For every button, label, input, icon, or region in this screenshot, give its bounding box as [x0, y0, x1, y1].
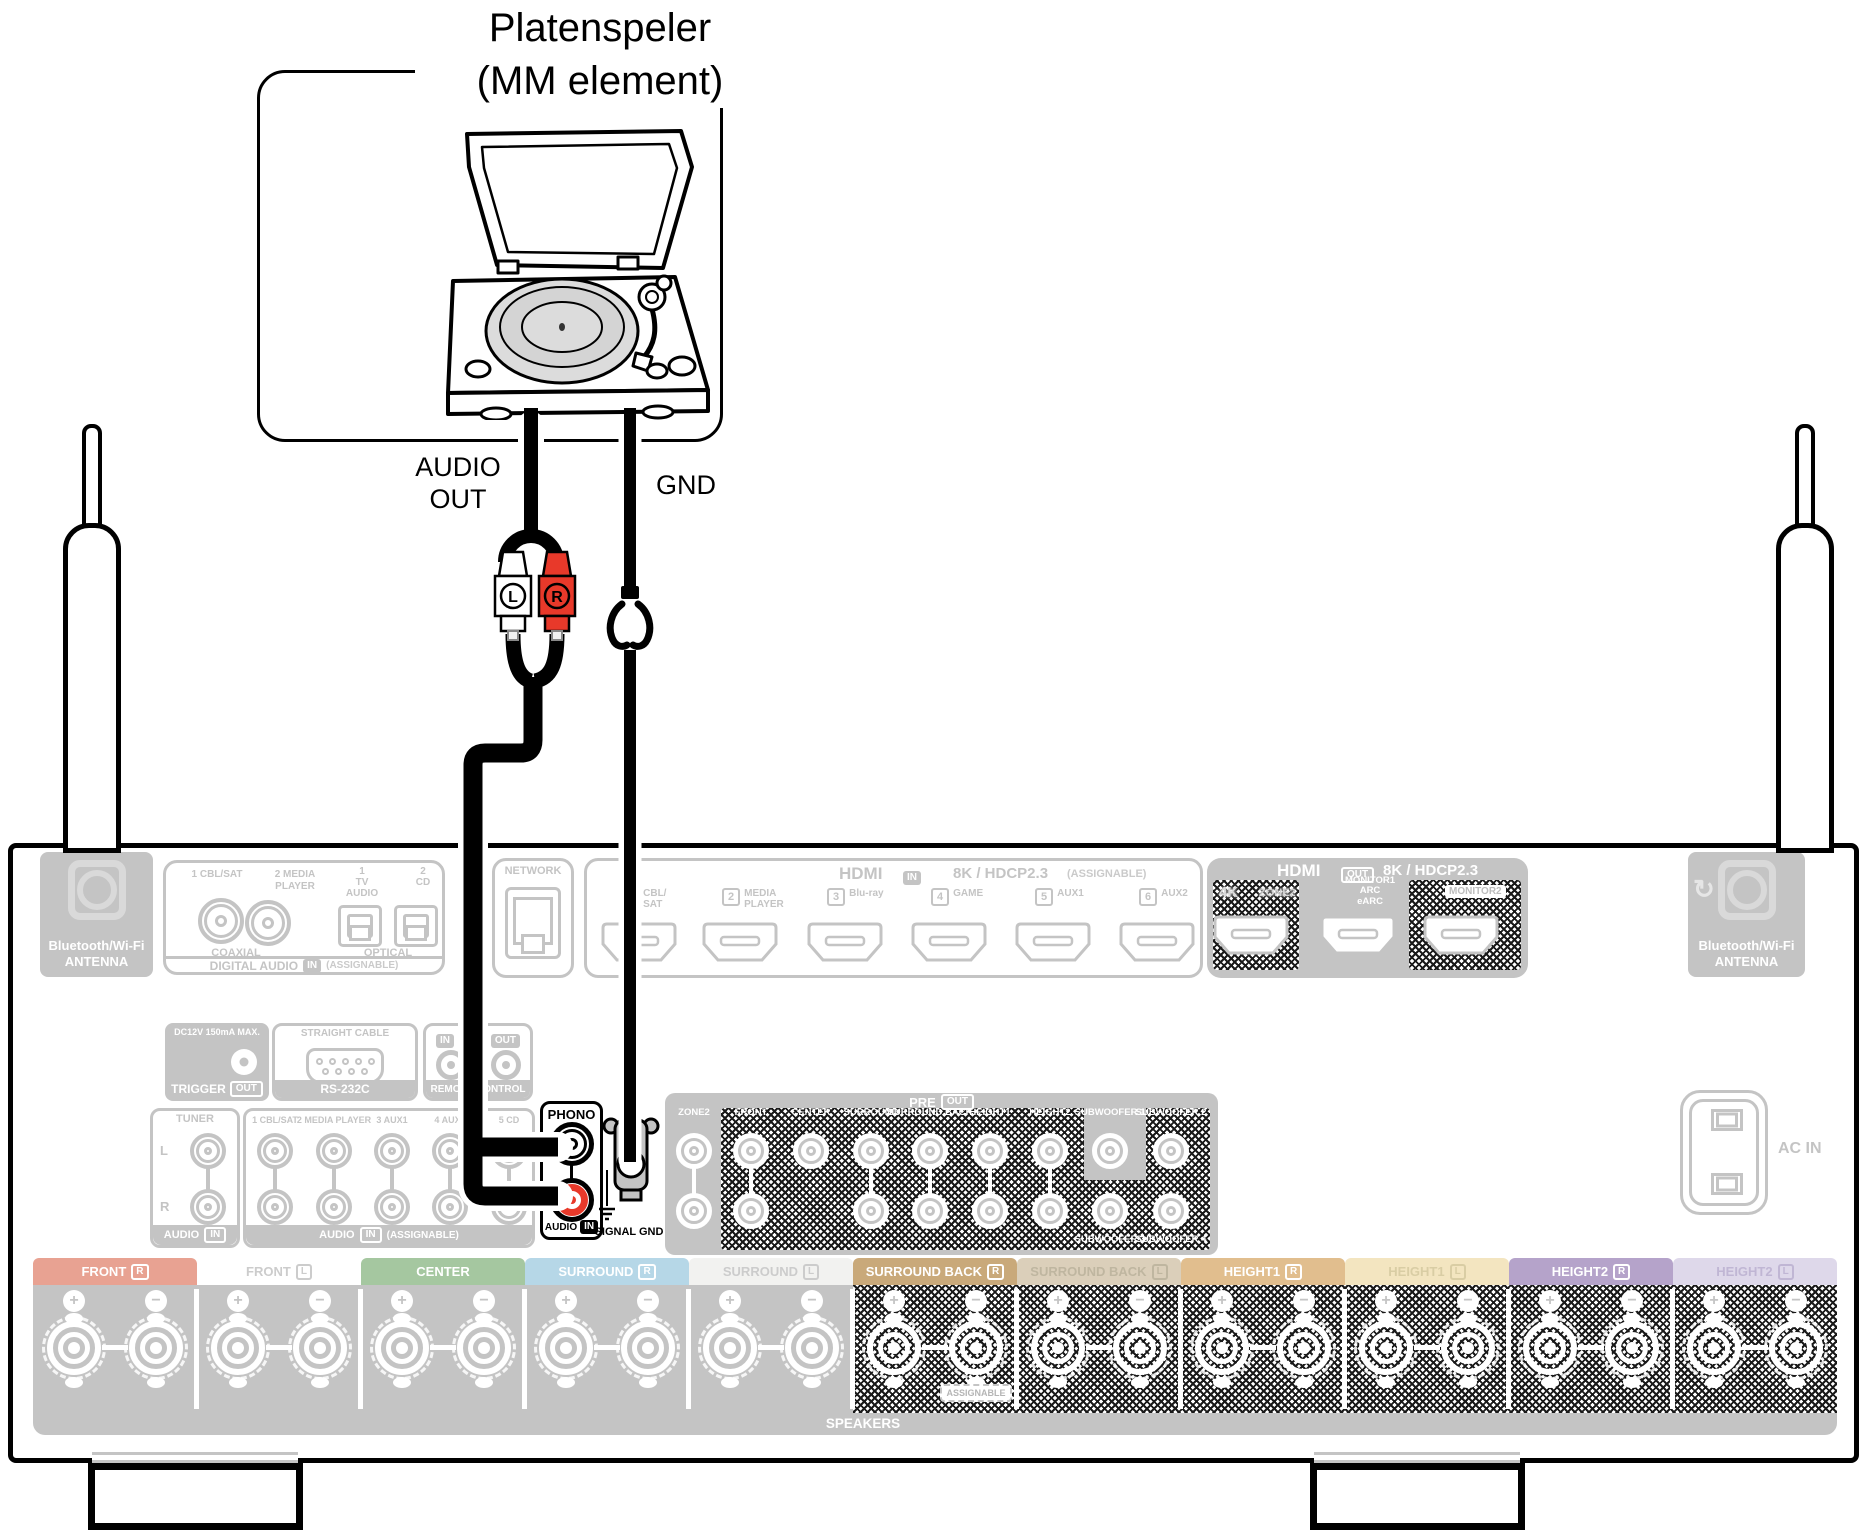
speaker-channel-band: HEIGHT1L [1345, 1258, 1509, 1285]
plus-terminal-symbol: + [719, 1290, 741, 1312]
right-antenna-tip [1795, 424, 1815, 530]
trigger-jack [231, 1049, 257, 1075]
hdmi-out-group: HDMI OUT 8K / HDCP2.3 4K ZONE2 MONITOR1 … [1207, 858, 1528, 978]
trigger-label: TRIGGER [171, 1082, 226, 1096]
plus-terminal-symbol: + [391, 1290, 413, 1312]
left-channel-letter: L [160, 1143, 168, 1158]
optical-port [394, 905, 438, 947]
analog-jack [432, 1133, 468, 1169]
gnd-spade-fork [610, 604, 650, 646]
speaker-binding-post [1195, 1321, 1249, 1375]
tuner-label: TUNER [153, 1113, 237, 1125]
speaker-channel-name: SURROUND [723, 1264, 798, 1279]
speaker-binding-post [1359, 1321, 1413, 1375]
remote-out-badge: OUT [491, 1034, 520, 1048]
hdmi-port-icon [600, 921, 678, 963]
chassis-recess [92, 1452, 298, 1463]
audio-cable-merge [513, 634, 531, 681]
assignable-label: (ASSIGNABLE) [387, 1230, 459, 1241]
speaker-channel-band: FRONTL [197, 1258, 361, 1285]
preout-jack [1092, 1193, 1128, 1229]
phono-jack-right [550, 1178, 594, 1222]
preout-column-label: FRONT [735, 1107, 768, 1118]
preout-jack [1153, 1193, 1189, 1229]
analog-audio-in-group: 1 CBL/SAT2 MEDIA PLAYER3 AUX14 AUX25 CD … [243, 1108, 535, 1248]
chassis-recess [1314, 1452, 1520, 1463]
hdmi-port-name: MEDIA PLAYER [744, 888, 784, 910]
plus-terminal-symbol: + [1047, 1290, 1069, 1312]
plus-terminal-symbol: + [1375, 1290, 1397, 1312]
analog-jack [257, 1133, 293, 1169]
speaker-channel-name: SURROUND BACK [1030, 1264, 1146, 1279]
preout-jack [972, 1193, 1008, 1229]
optical-input1-label: 1 TV AUDIO [338, 866, 386, 899]
preout-jack [676, 1133, 712, 1169]
analog-footer: AUDIO IN (ASSIGNABLE) [246, 1225, 532, 1245]
remote-control-block: IN OUT REMOTE CONTROL [423, 1023, 533, 1101]
speaker-channel-band: FRONTR [33, 1258, 197, 1285]
plus-terminal-symbol: + [883, 1290, 905, 1312]
hdmi-port-number: 4 [931, 888, 949, 906]
trigger-out-badge: OUT [230, 1081, 263, 1097]
hdmi-port-icon [1422, 914, 1500, 956]
speaker-channel-letter: L [1450, 1264, 1466, 1280]
analog-jack [432, 1189, 468, 1225]
receiver-rear-panel: Bluetooth/Wi-Fi ANTENNA ↻ Bluetooth/Wi-F… [8, 843, 1859, 1463]
speakers-label: SPEAKERS [783, 1416, 943, 1431]
minus-terminal-symbol: − [637, 1290, 659, 1312]
speaker-terminals-section: +−+−+−+−+−+−+−+−+−+−+− FRONTRFRONTLCENTE… [33, 1258, 1837, 1435]
hdmi-in-port-label: 3Blu-ray [827, 888, 884, 906]
speaker-binding-post [1113, 1321, 1167, 1375]
analog-jack [316, 1133, 352, 1169]
ac-inlet [1680, 1090, 1768, 1215]
speaker-binding-post [539, 1321, 593, 1375]
analog-input-label: 5 CD [499, 1115, 520, 1125]
preout-jack [853, 1133, 889, 1169]
hdmi-port-icon [701, 921, 779, 963]
assignable-label: (ASSIGNABLE) [326, 960, 398, 971]
diagram-title: Platenspeler (MM element) [415, 2, 785, 108]
minus-terminal-symbol: − [1457, 1290, 1479, 1312]
digital-audio-group: 1 CBL/SAT 2 MEDIA PLAYER 1 TV AUDIO 2 CD… [163, 860, 445, 975]
hdmi-in-group: HDMI IN 8K / HDCP2.3 (ASSIGNABLE) 1CBL/ … [584, 858, 1203, 978]
antenna-label: Bluetooth/Wi-Fi ANTENNA [1688, 938, 1805, 971]
phono-jack-left [550, 1122, 594, 1166]
analog-input-label: 2 MEDIA PLAYER [297, 1115, 371, 1125]
hdmi-in-port-label: 5AUX1 [1035, 888, 1084, 906]
minus-terminal-symbol: − [1621, 1290, 1643, 1312]
hdmi-port-number: 6 [1139, 888, 1157, 906]
preout-jack [912, 1193, 948, 1229]
network-label: NETWORK [495, 865, 571, 877]
speaker-channel-band: HEIGHT1R [1181, 1258, 1345, 1285]
speaker-binding-post [785, 1321, 839, 1375]
signal-gnd-terminal [593, 1112, 665, 1244]
plus-terminal-symbol: + [555, 1290, 577, 1312]
left-antenna-tip [82, 424, 102, 530]
preout-column-label: CENTER [791, 1107, 830, 1118]
preout-column-label: SUBWOOFER 2 [1136, 1107, 1207, 1118]
antenna-mount-icon [68, 860, 126, 920]
right-antenna [1776, 523, 1834, 853]
preout-jack [733, 1193, 769, 1229]
speaker-channel-letter: L [803, 1264, 819, 1280]
rca-left-letter: L [508, 589, 518, 606]
speaker-binding-post [1769, 1321, 1823, 1375]
hdmi-port-icon [910, 921, 988, 963]
speaker-channel-letter: R [1285, 1264, 1302, 1280]
coaxial-jack [245, 900, 291, 946]
preout-column-label: HEIGHT1 [969, 1107, 1010, 1118]
hdmi-in-port-label: 4GAME [931, 888, 983, 906]
digital-audio-title: DIGITAL AUDIO [210, 959, 298, 973]
speaker-channel-band: HEIGHT2L [1673, 1258, 1837, 1285]
speaker-binding-posts: +−+−+−+−+−+−+−+−+−+−+− [33, 1285, 1837, 1413]
tuner-jack-l [190, 1133, 226, 1169]
speaker-channel-band: HEIGHT2R [1509, 1258, 1673, 1285]
preout-jack [972, 1133, 1008, 1169]
trigger-out-block: DC12V 150mA MAX. TRIGGER OUT [165, 1023, 269, 1101]
bt-wifi-antenna-block-left: Bluetooth/Wi-Fi ANTENNA [40, 852, 153, 977]
pre-out-columns: ZONE2FRONTCENTERSURROUNDSURROUND BACKHEI… [665, 1093, 1218, 1255]
speaker-channel-name: HEIGHT1 [1388, 1264, 1444, 1279]
speaker-channel-name: SURROUND BACK [866, 1264, 982, 1279]
hdmi-out-ports [1207, 858, 1528, 978]
dust-cover [467, 131, 692, 268]
bt-wifi-antenna-block-right: ↻ Bluetooth/Wi-Fi ANTENNA [1688, 852, 1805, 977]
preout-jack [1092, 1133, 1128, 1169]
speaker-binding-post [703, 1321, 757, 1375]
preout-jack [853, 1193, 889, 1229]
rca-right-letter: R [551, 589, 563, 606]
coaxial-jack [198, 898, 244, 944]
speaker-binding-post [129, 1321, 183, 1375]
analog-jack [316, 1189, 352, 1225]
hdmi-port-icon [1319, 914, 1397, 956]
speaker-binding-post [375, 1321, 429, 1375]
speaker-channel-band: SURROUNDL [689, 1258, 853, 1285]
ac-pin [1711, 1109, 1743, 1131]
analog-jack [491, 1189, 527, 1225]
speaker-binding-post [457, 1321, 511, 1375]
hdmi-port-icon [1014, 921, 1092, 963]
plus-terminal-symbol: + [1539, 1290, 1561, 1312]
speaker-channel-name: FRONT [81, 1264, 126, 1279]
optical-input2-label: 2 CD [408, 866, 438, 888]
hdmi-port-name: AUX2 [1161, 888, 1188, 899]
speaker-channel-name: SURROUND [558, 1264, 633, 1279]
signal-gnd-label: SIGNAL GND [583, 1226, 675, 1238]
hinge-left [498, 261, 518, 273]
speaker-channel-name: HEIGHT2 [1552, 1264, 1608, 1279]
minus-terminal-symbol: − [1785, 1290, 1807, 1312]
remote-control-label: REMOTE CONTROL [426, 1080, 530, 1098]
coax-input2-label: 2 MEDIA PLAYER [260, 869, 330, 892]
optical-port [338, 905, 382, 947]
hdmi-port-name: GAME [953, 888, 983, 899]
preout-jack [1032, 1193, 1068, 1229]
speaker-channel-band: SURROUND BACKR [853, 1258, 1017, 1285]
analog-jack [257, 1189, 293, 1225]
trigger-spec: DC12V 150mA MAX. [165, 1027, 269, 1037]
preout-jack [793, 1133, 829, 1169]
hdmi-in-port-label: 2MEDIA PLAYER [722, 888, 784, 910]
rotate-arrow-icon: ↻ [1693, 874, 1715, 905]
digital-audio-footer: DIGITAL AUDIO IN (ASSIGNABLE) [166, 956, 442, 972]
in-badge: IN [360, 1227, 382, 1243]
counterweight [657, 276, 671, 290]
speaker-binding-post [1687, 1321, 1741, 1375]
speaker-channel-name: HEIGHT1 [1224, 1264, 1280, 1279]
hdmi-port-number: 5 [1035, 888, 1053, 906]
minus-terminal-symbol: − [145, 1290, 167, 1312]
speaker-channel-letter: L [1778, 1264, 1794, 1280]
preout-jack [733, 1133, 769, 1169]
antenna-mount-icon [1718, 860, 1776, 920]
remote-out-jack [491, 1050, 521, 1080]
hdmi-port-number: 1 [621, 888, 639, 906]
gnd-spade-sleeve [621, 586, 639, 599]
speaker-binding-post [1277, 1321, 1331, 1375]
speaker-channel-letter: L [1152, 1264, 1168, 1280]
minus-terminal-symbol: − [473, 1290, 495, 1312]
speaker-binding-post [47, 1321, 101, 1375]
plus-terminal-symbol: + [1703, 1290, 1725, 1312]
pre-out-group: PRE OUT ZONE2FRONTCENTERSURROUNDSURROUND… [665, 1093, 1218, 1255]
rs232-port [306, 1048, 384, 1084]
audio-label: AUDIO [319, 1229, 354, 1241]
speaker-binding-post [867, 1321, 921, 1375]
preout-jack [676, 1193, 712, 1229]
right-channel-letter: R [160, 1199, 169, 1214]
rs232-block: STRAIGHT CABLE RS-232C [272, 1023, 418, 1101]
spindle [559, 323, 565, 331]
diagram-title-line1: Platenspeler [415, 2, 785, 55]
hdmi-port-name: AUX1 [1057, 888, 1084, 899]
hdmi-port-number: 2 [722, 888, 740, 906]
tuner-footer: AUDIO IN [153, 1225, 237, 1245]
speaker-channel-letter: R [131, 1264, 148, 1280]
hdmi-port-name: Blu-ray [849, 888, 883, 899]
speaker-binding-post [293, 1321, 347, 1375]
remote-in-badge: IN [436, 1034, 454, 1048]
audio-out-label: AUDIO OUT [403, 452, 513, 516]
ground-symbol-icon [599, 1209, 615, 1219]
connection-diagram: Platenspeler (MM element) [0, 0, 1867, 1539]
speaker-channel-letter: R [1613, 1264, 1630, 1280]
speaker-binding-post [1523, 1321, 1577, 1375]
speaker-channel-letter: R [638, 1264, 655, 1280]
in-badge: IN [303, 959, 321, 973]
tuner-group: TUNER L R AUDIO IN [150, 1108, 240, 1248]
minus-terminal-symbol: − [309, 1290, 331, 1312]
speaker-channel-letter: L [296, 1264, 312, 1280]
gnd-screw [618, 1151, 644, 1177]
hdmi-in-port-label: 6AUX2 [1139, 888, 1188, 906]
speaker-binding-post [211, 1321, 265, 1375]
preout-column-label: SURROUND BACK [888, 1107, 973, 1118]
preout-column-label: SUBWOOFER 4 [1136, 1234, 1207, 1245]
receiver-foot-right [1310, 1463, 1525, 1530]
plus-terminal-symbol: + [63, 1290, 85, 1312]
speaker-binding-post [949, 1321, 1003, 1375]
network-group: NETWORK [492, 858, 574, 978]
rca-plug-left [495, 552, 531, 640]
speaker-channel-letter: R [987, 1264, 1004, 1280]
antenna-label: Bluetooth/Wi-Fi ANTENNA [40, 938, 153, 971]
analog-input-label: 4 AUX2 [434, 1115, 465, 1125]
analog-input-label: 3 AUX1 [376, 1115, 407, 1125]
speaker-channel-band: CENTER [361, 1258, 525, 1285]
in-badge: IN [204, 1227, 226, 1243]
audio-label: AUDIO [545, 1222, 577, 1233]
speakers-footer-bar: SPEAKERS [33, 1413, 1837, 1435]
phono-label: PHONO [543, 1107, 600, 1122]
remote-in-jack [436, 1050, 466, 1080]
hdmi-in-ports: 1CBL/ SAT2MEDIA PLAYER3Blu-ray4GAME5AUX1… [587, 861, 1206, 981]
hdmi-port-icon [1212, 914, 1290, 956]
preout-column-label: ZONE2 [678, 1107, 710, 1118]
minus-terminal-symbol: − [965, 1290, 987, 1312]
tuner-jack-r [190, 1189, 226, 1225]
speaker-channel-band: SURROUNDR [525, 1258, 689, 1285]
audio-cable-loop [505, 536, 557, 562]
hdmi-port-icon [1118, 921, 1196, 963]
preout-column-label: HEIGHT2 [1029, 1107, 1070, 1118]
hdmi-in-port-label: 1CBL/ SAT [621, 888, 666, 910]
audio-label: AUDIO [164, 1229, 199, 1241]
ac-pin [1711, 1173, 1743, 1195]
minus-terminal-symbol: − [801, 1290, 823, 1312]
hdmi-port-number: 3 [827, 888, 845, 906]
analog-input-label: 1 CBL/SAT [252, 1115, 298, 1125]
speaker-channel-name: HEIGHT2 [1716, 1264, 1772, 1279]
speaker-binding-post [1605, 1321, 1659, 1375]
left-antenna [63, 523, 121, 853]
speaker-binding-post [1031, 1321, 1085, 1375]
turntable-illustration [370, 105, 720, 420]
speaker-binding-post [621, 1321, 675, 1375]
analog-jack [374, 1189, 410, 1225]
coax-input1-label: 1 CBL/SAT [174, 869, 260, 881]
rs232-label: RS-232C [275, 1080, 415, 1098]
diagram-title-line2: (MM element) [415, 55, 785, 108]
gnd-label: GND [656, 470, 716, 501]
receiver-foot-left [88, 1463, 303, 1530]
speakers-assignable-label: ASSIGNABLE [940, 1384, 1012, 1402]
plus-terminal-symbol: + [1211, 1290, 1233, 1312]
hdmi-port-icon [806, 921, 884, 963]
preout-jack [912, 1133, 948, 1169]
analog-jack [374, 1133, 410, 1169]
speaker-binding-post [1441, 1321, 1495, 1375]
analog-jack [491, 1133, 527, 1169]
speaker-channel-name: CENTER [416, 1264, 469, 1279]
preout-jack [1153, 1133, 1189, 1169]
plus-terminal-symbol: + [227, 1290, 249, 1312]
speed-knob [466, 361, 490, 377]
speaker-channel-band: SURROUND BACKL [1017, 1258, 1181, 1285]
preout-jack [1032, 1133, 1068, 1169]
hdmi-port-name: CBL/ SAT [643, 888, 666, 910]
speaker-channel-name: FRONT [246, 1264, 291, 1279]
rca-plug-right [539, 552, 575, 640]
straight-cable-label: STRAIGHT CABLE [275, 1028, 415, 1039]
ethernet-port [505, 887, 561, 959]
ac-in-label: AC IN [1778, 1140, 1822, 1158]
minus-terminal-symbol: − [1129, 1290, 1151, 1312]
hinge-right [618, 257, 638, 269]
minus-terminal-symbol: − [1293, 1290, 1315, 1312]
